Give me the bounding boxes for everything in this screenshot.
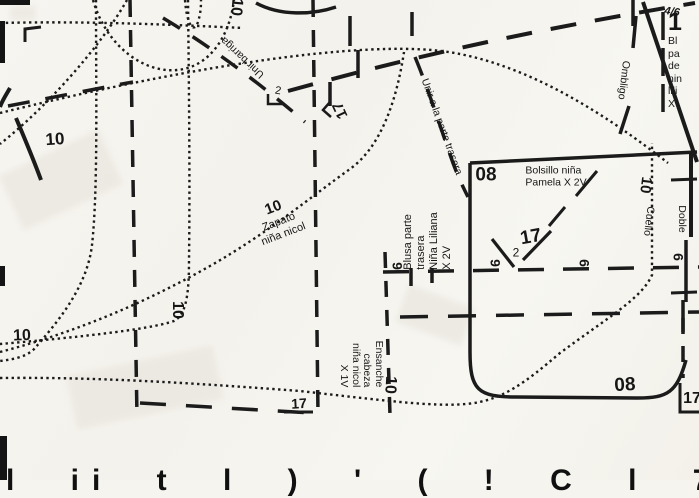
blusa-line: X 2V <box>441 212 454 269</box>
right-edge-line: pa <box>668 48 699 61</box>
ensanche-size: 10 <box>381 376 400 395</box>
bolsillo-code-bottom: 08 <box>614 375 636 397</box>
right-edge-line: nin <box>668 73 699 86</box>
bolsillo-name-line2: Pamela X 2V <box>525 177 586 189</box>
notch-digit: 6 <box>670 253 685 261</box>
cut-off-text-fragments: l ii t l ) ' ( ! C l 7 l ll <box>6 464 699 498</box>
ensanche-line: X 1V <box>338 341 350 388</box>
blusa-trasera-block: Blusa parte trasera Niña Liliana X 2V <box>402 212 454 269</box>
corner-17: 17 <box>683 390 699 408</box>
cuello-label: Cuello <box>640 206 655 237</box>
ensanche-line: cabeza <box>361 341 373 388</box>
size-10-box: 10 <box>168 301 186 319</box>
ensanche-line: niña nicol <box>350 341 362 388</box>
right-edge-line: X <box>668 98 699 111</box>
bolsillo-name-line1: Bolsillo niña <box>525 165 586 177</box>
right-edge-number: 1 <box>668 10 699 35</box>
pleat-number-2: 2 <box>513 246 520 259</box>
right-edge-line: Bl <box>668 35 699 48</box>
blusa-line: trasera <box>415 212 428 269</box>
right-edge-line: lili <box>668 85 699 98</box>
size-10-bottomleft: 10 <box>13 327 31 345</box>
size-10-midleft: 10 <box>45 130 65 150</box>
notch-digit: 9 <box>487 259 502 267</box>
dotted-curves <box>0 0 668 405</box>
bolsillo-code-top: 08 <box>475 166 496 187</box>
cuello-size: 10 <box>636 176 654 195</box>
doble-label: Doble <box>675 205 687 232</box>
scan-edge-artifacts <box>0 0 30 480</box>
pattern-linework <box>0 0 699 480</box>
mark-17-bottom: 17 <box>291 396 307 412</box>
ensanche-block: Ensanche cabeza niña nicol X 1V <box>338 341 384 388</box>
bolsillo-name: Bolsillo niña Pamela X 2V <box>525 165 586 190</box>
right-edge-text-block: 1 Bl pa de nin lili X <box>668 10 699 118</box>
size-10-top: 10 <box>226 0 245 17</box>
notch-digit: 6 <box>576 259 591 267</box>
pleat-size-17: 17 <box>519 226 543 250</box>
blusa-line: Blusa parte <box>402 212 415 269</box>
right-edge-line: de <box>668 60 699 73</box>
blusa-line: Niña Liliana <box>428 212 441 269</box>
